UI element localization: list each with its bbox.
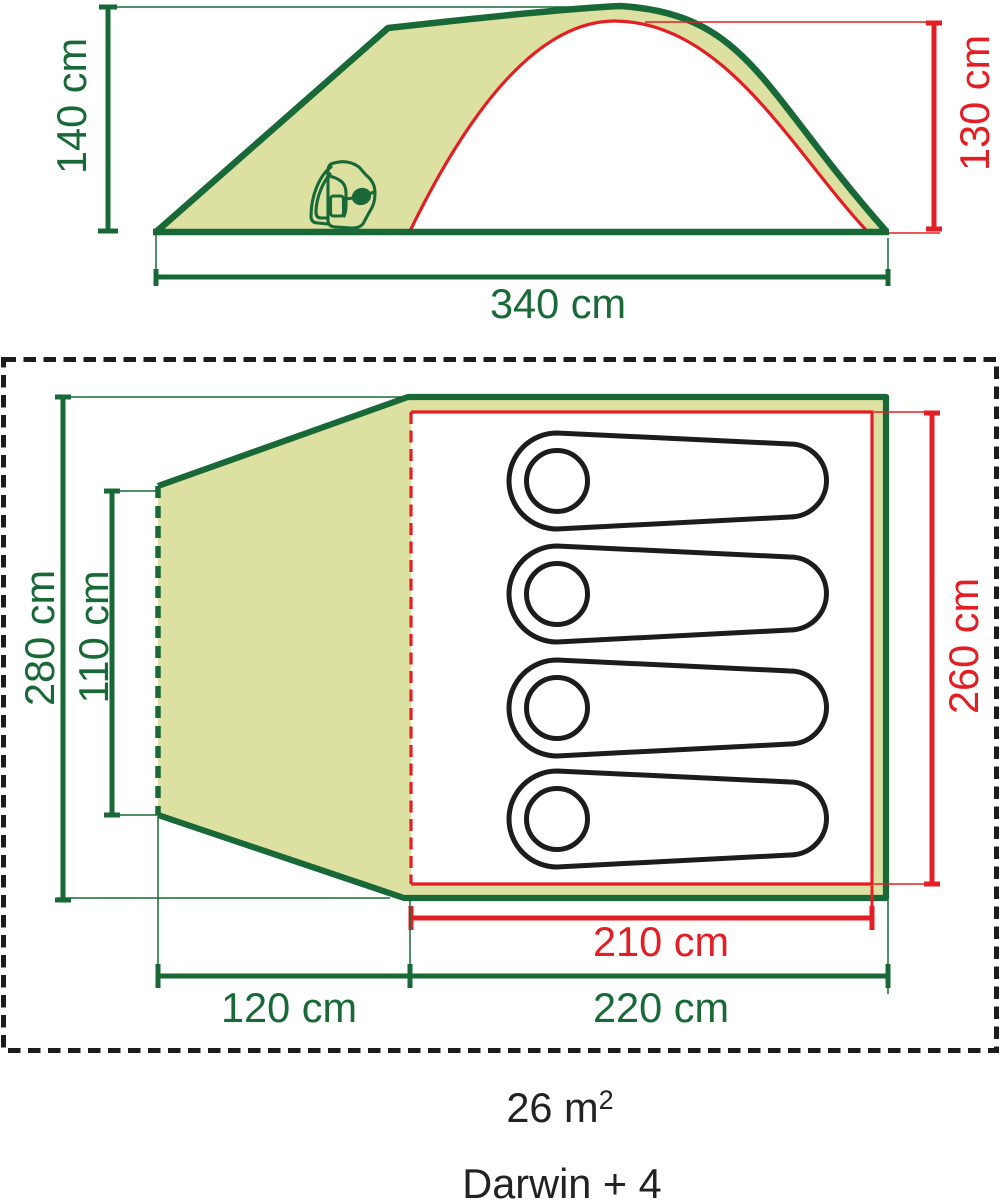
svg-text:220 cm: 220 cm <box>593 984 729 1031</box>
svg-text:Darwin + 4: Darwin + 4 <box>462 1160 662 1200</box>
svg-text:340 cm: 340 cm <box>490 280 626 327</box>
svg-text:260 cm: 260 cm <box>940 578 987 714</box>
svg-text:130 cm: 130 cm <box>951 35 998 171</box>
svg-text:210 cm: 210 cm <box>593 918 729 965</box>
svg-text:110 cm: 110 cm <box>70 570 117 703</box>
svg-text:26 m2: 26 m2 <box>506 1084 613 1131</box>
svg-text:140 cm: 140 cm <box>48 38 95 174</box>
svg-text:280 cm: 280 cm <box>16 570 63 706</box>
svg-text:120 cm: 120 cm <box>221 984 357 1031</box>
